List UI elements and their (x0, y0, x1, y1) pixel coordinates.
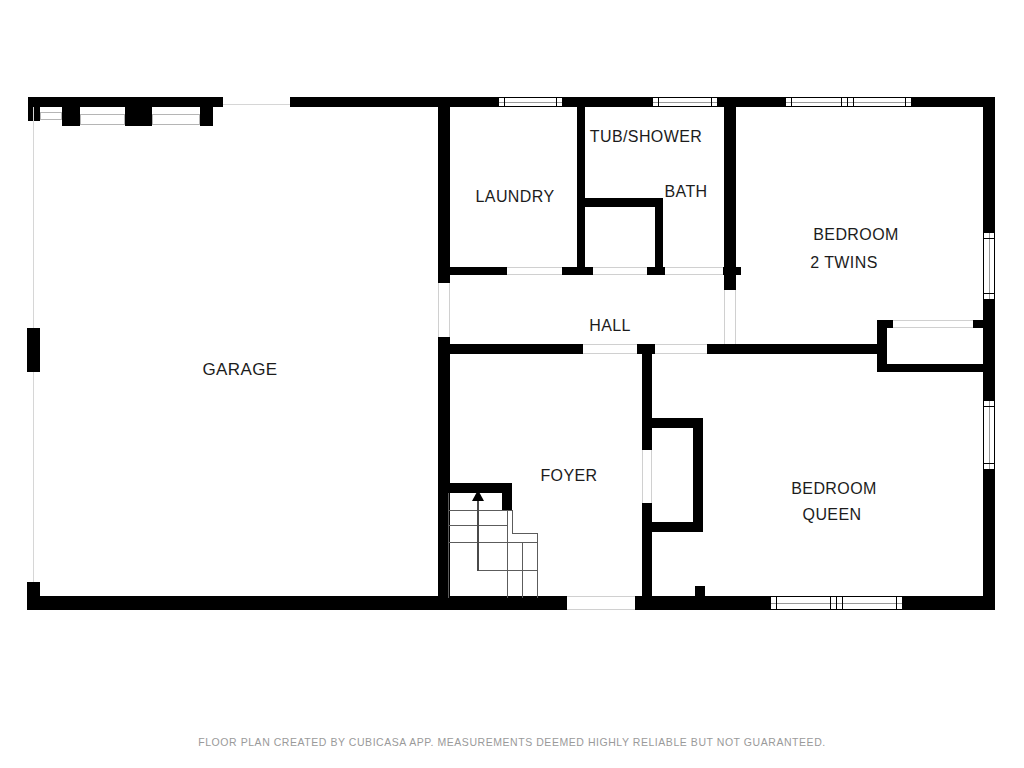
room-sublabel-bedroom-twins: 2 TWINS (810, 254, 877, 272)
wall-segment (724, 107, 736, 267)
window-symbol (983, 400, 995, 470)
wall-segment (577, 107, 585, 275)
stair-tread-line (507, 510, 508, 598)
wall-segment (438, 107, 450, 283)
wall-segment (637, 344, 655, 354)
door-opening (438, 283, 450, 337)
garage-door-jamb (200, 107, 213, 126)
room-label-garage: GARAGE (202, 360, 277, 380)
wall-segment (912, 97, 995, 107)
wall-segment (583, 198, 663, 207)
room-sublabel-bedroom-queen: QUEEN (803, 506, 862, 524)
wall-segment (450, 344, 583, 354)
room-label-tub-shower: TUB/SHOWER (590, 128, 702, 146)
wall-segment (290, 97, 498, 107)
wall-segment (562, 267, 593, 275)
closet-wall (652, 522, 703, 532)
wall-segment (723, 267, 741, 275)
door-opening (583, 344, 637, 354)
garage-door-panel (152, 114, 200, 125)
stairs-up-arrow-icon (472, 490, 484, 501)
room-label-laundry: LAUNDRY (476, 188, 555, 206)
opening-line (223, 104, 290, 105)
closet-door-opening (642, 450, 652, 503)
wall-segment (642, 354, 652, 450)
room-label-hall: HALL (589, 317, 631, 335)
closet-wall (877, 364, 983, 372)
stair-outline (448, 493, 449, 598)
wall-segment (647, 267, 665, 275)
stair-outline (537, 533, 538, 598)
window-symbol (770, 596, 837, 610)
door-opening (507, 267, 562, 275)
stair-tread-line (448, 510, 512, 511)
room-label-bath: BATH (664, 183, 707, 201)
closet-wall (652, 418, 703, 428)
opening-line (33, 372, 34, 582)
wall-segment (983, 300, 995, 400)
stair-walk-line (477, 500, 479, 571)
window-symbol (652, 97, 718, 107)
wall-segment (983, 107, 995, 232)
door-opening (724, 290, 736, 344)
wall-segment (27, 328, 40, 372)
wall-segment (707, 344, 877, 354)
wall-segment (655, 207, 663, 267)
wall-segment (903, 596, 995, 610)
garage-door-panel (40, 112, 62, 120)
floor-plan-canvas: GARAGE LAUNDRY TUB/SHOWER BATH BEDROOM 2… (0, 0, 1024, 768)
garage-door-panel (80, 114, 125, 125)
wall-segment (27, 596, 567, 610)
window-symbol (983, 232, 995, 300)
stair-walk-line (477, 570, 538, 571)
room-label-bedroom-twins: BEDROOM (813, 226, 898, 244)
footer-disclaimer: FLOOR PLAN CREATED BY CUBICASA APP. MEAS… (198, 736, 826, 748)
door-opening (593, 267, 647, 275)
door-opening (665, 267, 723, 275)
front-door-opening (567, 596, 635, 610)
opening-line (33, 107, 34, 328)
garage-door-jamb (62, 107, 80, 126)
window-symbol (498, 97, 563, 107)
closet-wall (973, 320, 983, 328)
garage-door-jamb (28, 107, 40, 121)
stair-header-wall (502, 493, 512, 510)
wall-segment (28, 97, 223, 107)
stair-tread-line (512, 510, 513, 533)
stair-tread-line (448, 542, 537, 543)
room-label-foyer: FOYER (540, 467, 597, 485)
door-opening (655, 344, 707, 354)
window-symbol (785, 97, 848, 107)
window-symbol (847, 97, 912, 107)
stair-tread-line (512, 533, 537, 534)
garage-door-jamb (125, 107, 152, 126)
window-symbol (836, 596, 903, 610)
wall-segment (635, 596, 770, 610)
wall-segment (695, 586, 705, 596)
room-label-bedroom-queen: BEDROOM (791, 480, 876, 498)
wall-segment (563, 97, 652, 107)
wall-segment (983, 470, 995, 610)
wall-segment (718, 97, 785, 107)
wall-segment (642, 503, 652, 596)
wall-segment (724, 275, 736, 290)
wall-segment (448, 267, 507, 275)
closet-wall (693, 428, 703, 522)
closet-door-opening (893, 320, 973, 328)
